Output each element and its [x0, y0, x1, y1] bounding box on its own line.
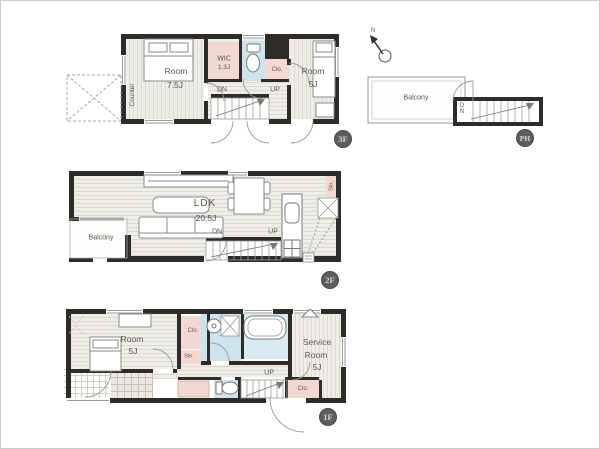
stairs-up-label-3f: UP — [270, 87, 280, 94]
closet-label-3f: Clo. — [272, 67, 283, 73]
window-x-mark — [69, 316, 83, 334]
floor-badge-3f: 3F — [334, 130, 352, 148]
desk-icon-3f — [316, 103, 334, 117]
washing-machine-icon — [221, 316, 239, 336]
room2-size-label: 5J — [309, 80, 318, 89]
ldk-name-label: LDK — [194, 199, 216, 209]
counter-label: Counter — [130, 83, 137, 106]
stairs-arrowhead-2f — [270, 243, 278, 250]
balcony-label-2f: Balcony — [89, 235, 114, 242]
north-arrow-icon — [370, 35, 391, 62]
floor-plan-ph: N Balcony DN PH — [361, 25, 551, 151]
stairs-up-label-1f: UP — [264, 370, 274, 377]
bathtub-icon — [244, 316, 286, 339]
floor-plan-1f: Room 5J Clo. Sto. Service Room 5J UP Clo… — [61, 304, 361, 436]
room-size-label-1f: 5J — [129, 347, 138, 356]
floor-badge-2f: 2F — [321, 271, 339, 289]
stairs-down-label-ph: DN — [459, 103, 465, 121]
floor-badge-ph: PH — [516, 129, 534, 147]
fridge-space-icon — [318, 198, 338, 218]
stairs-up-label-2f: UP — [268, 229, 278, 236]
desk-icon-1f — [119, 314, 151, 327]
floorplan-page: Room 7.5J WIC 1.3J Clo. Room 5J DN UP Co… — [0, 0, 600, 449]
void-annex — [67, 75, 121, 121]
closet1-label-1f: Clo. — [188, 328, 199, 334]
north-label: N — [371, 28, 375, 34]
toilet-icon-3f — [247, 44, 261, 72]
storage-label-2f: Sto. — [329, 181, 335, 191]
service-room-label-line1: Service — [303, 338, 331, 347]
wic-size-label: 1.3J — [218, 65, 230, 72]
note-marker — [303, 218, 336, 262]
room-name-label-1f: Room — [121, 335, 144, 344]
single-bed-icon-1f — [90, 337, 121, 371]
room2-name-label: Room — [302, 67, 325, 76]
floor-badge-1f: 1F — [319, 408, 337, 426]
toilet-icon-1f — [216, 382, 238, 394]
service-room-size-label: 5J — [313, 363, 322, 372]
stairs-down-label-3f: DN — [217, 87, 227, 94]
washbasin-icon — [207, 319, 221, 333]
floorplan-3f-drawing — [65, 27, 357, 159]
tv-board-icon — [144, 175, 233, 187]
room1-size-label: 7.5J — [167, 81, 183, 90]
kitchen-counter-icon — [282, 194, 302, 258]
stairs-arrowhead-3f — [257, 99, 265, 106]
stairs-down-label-2f: DN — [212, 229, 222, 236]
storage-label-1f: Sto. — [184, 354, 194, 360]
ldk-size-label: 20.5J — [196, 214, 217, 223]
floor-plan-2f: LDK 20.5J Balcony DN UP Sto. 2F — [65, 167, 357, 293]
room1-name-label: Room — [165, 67, 188, 76]
balcony-label-ph: Balcony — [404, 95, 429, 102]
floor-plan-3f: Room 7.5J WIC 1.3J Clo. Room 5J DN UP Co… — [65, 27, 357, 159]
shoe-closet-outline — [178, 381, 209, 397]
closet2-label-1f: Clo. — [298, 386, 309, 392]
wic-name-label: WIC — [217, 56, 231, 63]
dining-table-icon — [228, 178, 270, 214]
service-room-label-line2: Room — [305, 351, 328, 360]
